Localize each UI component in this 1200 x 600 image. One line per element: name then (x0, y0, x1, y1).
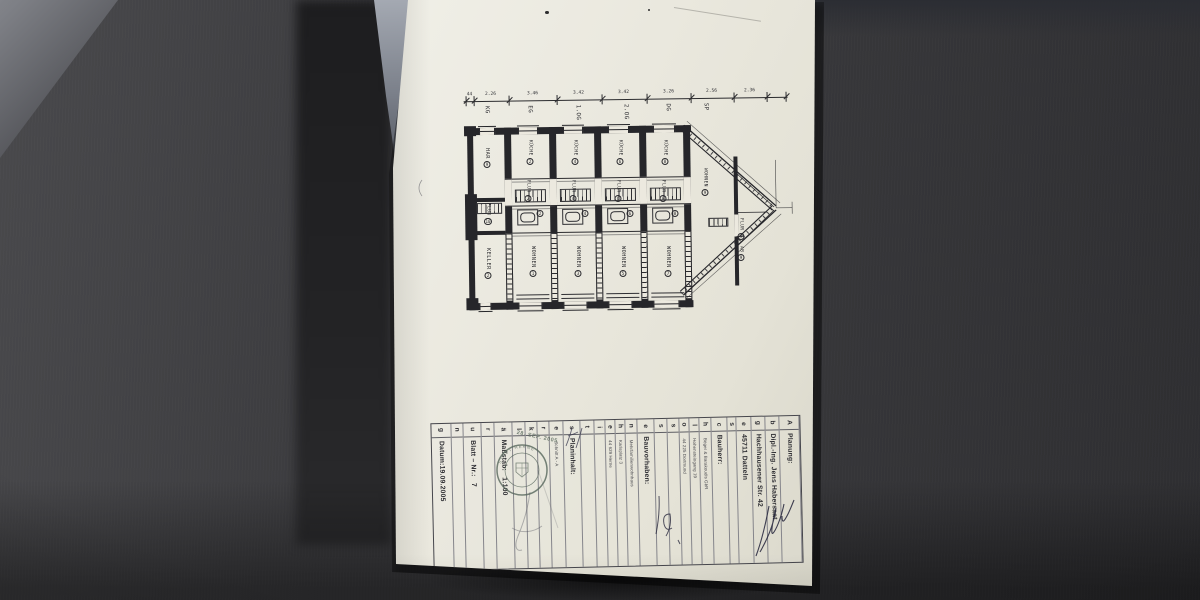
slab-hatch (595, 232, 603, 299)
room-label: KÜCHE 2 (527, 140, 534, 165)
door-opening (505, 179, 512, 207)
room-label: FLUR 6 (615, 180, 622, 202)
title-block-entry: Datum:19.09.2005 (432, 438, 454, 570)
window-parapet (606, 293, 639, 298)
slab-hatch (684, 231, 692, 298)
floor-label: 1.OG (575, 105, 581, 121)
kg-wall (474, 198, 505, 202)
room-name: FLUR (485, 203, 490, 216)
slab-hatch (550, 233, 558, 300)
room-number-badge: 8 (662, 158, 669, 165)
room-number-badge: 2 (525, 195, 532, 202)
title-block-entry: Planung: (780, 430, 802, 562)
room-number-badge: 3 (575, 270, 582, 277)
room-name: AB (739, 246, 744, 252)
room-label: KÜCHE 4 (572, 140, 579, 165)
room-number-badge: 7 (665, 270, 672, 277)
title-block: APlanung:bDipl.-Ing. Jens HabersaatgHach… (430, 415, 803, 571)
window (608, 301, 632, 308)
window-parapet (561, 293, 594, 298)
bathtub (652, 207, 673, 223)
vertical-word-letter: g (431, 424, 450, 438)
room-label: AB 9 (738, 246, 745, 261)
vertical-word-letter: c (711, 417, 727, 431)
stair-run (708, 218, 728, 227)
vertical-word-letter: ä (494, 422, 512, 436)
door-opening (595, 177, 602, 205)
room-number-badge: 2 (537, 210, 544, 217)
footing-block (464, 126, 476, 136)
floor-slab (504, 128, 514, 310)
room-number-badge: 9 (702, 189, 709, 196)
room-number-badge: 1 (530, 270, 537, 277)
room-number-badge: 8 (660, 195, 667, 202)
title-block-entry: Blatt – Nr.: 7 (464, 437, 485, 569)
vertical-word-letter: t (580, 421, 593, 435)
dimension-value: 44 (467, 92, 473, 97)
vertical-word-letter: e (605, 420, 615, 434)
dimension-value: 3.42 (573, 91, 584, 96)
bathtub (562, 209, 583, 225)
room-name: WOHNEN (530, 246, 536, 268)
room-number-badge: 10 (484, 218, 492, 225)
title-block-entry: Bauvorhaben: (637, 433, 656, 565)
door-opening (550, 178, 557, 206)
room-number-badge: 4 (572, 158, 579, 165)
room-number-badge: 5 (620, 270, 627, 277)
vertical-word-letter: l (689, 418, 699, 432)
room-name: FLUR (616, 180, 621, 193)
vertical-word-letter: h (700, 418, 711, 432)
gable-base-wall (683, 125, 693, 307)
dimension-value: 2.36 (744, 88, 755, 93)
room-label: FLUR 8 (660, 180, 667, 202)
room-name: WOHNEN (620, 246, 626, 268)
bathtub (517, 209, 538, 225)
room-name: FLUR (739, 218, 744, 231)
room-label: FLUR 10 (484, 203, 492, 225)
room-number-badge: 6 (627, 210, 634, 217)
room-number-badge: 6 (617, 158, 624, 165)
dimension-tick (474, 96, 475, 106)
floor-slab (639, 126, 649, 308)
vertical-word-letter: s (668, 419, 679, 433)
dimension-value: 2.26 (485, 92, 496, 97)
bathtub (607, 208, 628, 224)
dimension-tick (786, 92, 787, 102)
slab-hatch (505, 234, 513, 301)
vertical-word-letter: g (751, 417, 765, 431)
window (479, 128, 495, 135)
door-opening (640, 177, 647, 205)
vertical-word-letter: i (594, 420, 605, 434)
vertical-word-letter: n (626, 420, 637, 434)
window (563, 127, 583, 134)
room-label: FLUR 2 (525, 180, 532, 202)
room-number-badge: 2 (485, 272, 492, 279)
vertical-word-letter: e (637, 419, 654, 433)
room-label: FLUR 9 (738, 218, 745, 240)
room-name: FLUR (661, 180, 666, 193)
room-number-badge: 6 (615, 195, 622, 202)
photographed-plan-scene: 442.263.463.423.423.262.562.36 KGEG1.OG2… (0, 0, 1200, 600)
title-block-column: gDatum:19.09.2005 (431, 424, 454, 570)
room-name: KÜCHE (663, 140, 668, 156)
floor-label: EG (527, 105, 533, 113)
window (608, 126, 629, 133)
room-number-badge: 4 (582, 210, 589, 217)
vertical-word-letter: A (780, 416, 799, 430)
room-label: WOHNEN 1 (530, 246, 537, 277)
dimension-tick (509, 96, 510, 106)
exterior-wall-top (467, 125, 691, 135)
floor-label: KG (484, 106, 490, 114)
room-number-badge: 4 (570, 195, 577, 202)
window (518, 127, 538, 134)
dimension-tick (557, 95, 558, 105)
dimension-tick (734, 93, 735, 103)
room-label: WOHNEN 9 (702, 168, 709, 196)
room-label: WOHNEN 3 (575, 246, 582, 277)
vertical-word-letter: h (615, 420, 625, 434)
title-block-column: äMaßstab: 1:100 (494, 422, 516, 568)
room-number-badge: 2 (527, 158, 534, 165)
dimension-value: 2.56 (706, 89, 717, 94)
room-number-badge: 9 (738, 233, 745, 240)
dimension-tick (602, 94, 603, 104)
room-number-badge: 9 (738, 254, 745, 261)
exterior-wall-bottom (469, 300, 693, 310)
dimension-tick (691, 93, 692, 103)
room-name: HAR (484, 148, 490, 159)
title-block-entry: Maßstab: 1:100 (494, 436, 515, 568)
window (518, 302, 542, 309)
room-name: KÜCHE (573, 140, 578, 156)
dimension-value: 3.42 (618, 90, 629, 95)
vertical-word-letter: s (727, 417, 736, 431)
dimension-tick (767, 92, 768, 102)
window (563, 302, 587, 309)
vertical-word-letter: s (654, 419, 667, 433)
room-name: KÜCHE (528, 140, 533, 156)
room-name: WOHNEN (703, 168, 708, 187)
room-name: WOHNEN (665, 246, 671, 268)
room-label: HAR 9 (484, 148, 491, 168)
vertical-word-letter: s (563, 421, 580, 435)
dimension-value: 3.46 (527, 91, 538, 96)
dimension-tick (466, 96, 467, 106)
window (479, 303, 491, 310)
floor-label: 2.OG (623, 104, 629, 120)
dimension-value: 3.26 (663, 89, 674, 94)
room-name: FLUR (526, 180, 531, 193)
title-block-entry: Bauherr: (711, 431, 729, 563)
vertical-word-letter: u (463, 423, 481, 437)
title-block-column: cBauherr: (711, 417, 731, 563)
room-label: WOHNEN 7 (665, 246, 672, 277)
room-label: 8 (672, 210, 679, 217)
kg-wall (474, 231, 505, 235)
room-label: 2 (537, 210, 544, 217)
paper-sheet: 442.263.463.423.423.262.562.36 KGEG1.OG2… (388, 0, 824, 600)
window (653, 300, 679, 307)
window-parapet (651, 292, 684, 297)
floor-label: SP (703, 103, 709, 111)
room-name: KELLER (485, 248, 491, 270)
title-block-entry: Planinhalt: (563, 435, 582, 567)
room-label: KÜCHE 6 (617, 140, 624, 165)
room-number-badge: 8 (672, 210, 679, 217)
floor-label: DG (665, 103, 671, 111)
room-name: FLUR (571, 180, 576, 193)
room-label: KÜCHE 8 (662, 140, 669, 165)
vertical-word-letter: e (550, 421, 563, 435)
title-block-column: uBlatt – Nr.: 7 (463, 423, 485, 569)
room-number-badge: 9 (484, 161, 491, 168)
window-parapet (516, 294, 549, 299)
footing-block (466, 298, 478, 310)
room-label: FLUR 4 (570, 180, 577, 202)
vertical-word-letter: e (737, 417, 751, 431)
vertical-word-letter: r (482, 423, 494, 437)
vertical-word-letter: n (451, 423, 463, 437)
room-label: 4 (582, 210, 589, 217)
vertical-word-letter: o (679, 418, 689, 432)
section-drawing: 442.263.463.423.423.262.562.36 KGEG1.OG2… (385, 0, 827, 423)
door-opening (684, 176, 691, 204)
window (653, 125, 675, 132)
room-label: 6 (627, 210, 634, 217)
slab-hatch (640, 232, 648, 299)
dimension-tick (647, 94, 648, 104)
room-name: KÜCHE (618, 140, 623, 156)
room-label: KELLER 2 (485, 248, 492, 279)
room-label: WOHNEN 5 (620, 246, 627, 277)
title-block-column: eBauvorhaben: (637, 419, 658, 565)
room-name: WOHNEN (575, 246, 581, 268)
floor-slab (549, 127, 559, 309)
title-block-column: APlanung: (780, 416, 803, 562)
vertical-word-letter: b (765, 416, 779, 430)
floor-slab (594, 126, 604, 308)
